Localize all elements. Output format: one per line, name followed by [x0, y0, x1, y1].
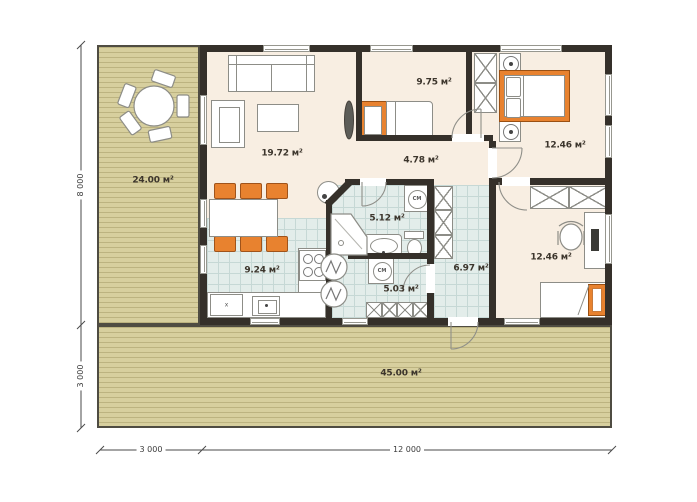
door-gap-entrance: [448, 317, 478, 326]
window-kitchen-left-1: [200, 199, 207, 228]
dining-chair: [240, 236, 262, 252]
computer-monitor: [591, 229, 599, 251]
dim-height-house: 8 000: [76, 171, 86, 200]
label-terrace-side: 24.00 м²: [132, 177, 173, 186]
wall-bath-corridor: [427, 179, 434, 318]
window-master-right-2: [605, 125, 612, 158]
office-wardrobe: [530, 186, 608, 209]
door-gap-office: [502, 177, 530, 186]
label-living-room: 19.72 м²: [261, 150, 302, 159]
door-gap-utility: [426, 264, 435, 293]
label-hallway: 4.78 м²: [403, 157, 438, 166]
door-gap-bedroom-small: [452, 134, 484, 142]
washing-machine: СМ: [404, 185, 429, 212]
window-bedroom-small-top: [370, 45, 413, 52]
kitchen-sink: [252, 296, 280, 316]
label-bathroom: 5.12 м²: [369, 215, 404, 224]
dim-height-terrace: 3 000: [76, 362, 86, 391]
label-utility: 5.03 м²: [383, 286, 418, 295]
window-living-top: [263, 45, 310, 52]
dining-chair: [214, 236, 236, 252]
label-bedroom-master: 12.46 м²: [544, 142, 585, 151]
stove: [299, 250, 326, 281]
window-living-left: [200, 95, 207, 145]
label-bedroom-small: 9.75 м²: [416, 79, 451, 88]
window-utility-bottom: [342, 318, 368, 325]
wall-outer-left: [200, 45, 207, 325]
terrace-front: [97, 325, 612, 428]
wall-living-bedroom: [356, 52, 362, 141]
washing-machine-label: СМ: [413, 196, 422, 202]
kitchen-appliance-label: x: [225, 302, 229, 309]
sofa: [228, 55, 315, 92]
door-gap-bathroom: [360, 178, 386, 186]
nightstand: [499, 121, 521, 142]
dining-table: [209, 199, 278, 237]
wall-bath-top: [345, 179, 434, 185]
door-gap-master: [488, 148, 497, 178]
corridor-wardrobe: [434, 186, 453, 259]
washing-machine: СМ: [368, 256, 394, 284]
wall-kitchen-bath: [326, 200, 332, 318]
storage-cabinet: [366, 302, 428, 318]
window-master-right-1: [605, 74, 612, 116]
floor-plan: x СМ СМ: [0, 0, 697, 502]
bed-headboard: [588, 284, 606, 316]
master-wardrobe: [474, 53, 497, 113]
wall-bedrooms: [466, 52, 472, 135]
window-kitchen-bottom: [250, 318, 280, 325]
armchair: [211, 100, 245, 148]
dining-chair: [266, 183, 288, 199]
window-office-bottom: [504, 318, 540, 325]
toilet-tank: [404, 231, 424, 239]
window-kitchen-left-2: [200, 245, 207, 274]
washing-machine-label: СМ: [378, 268, 387, 274]
window-master-top: [500, 45, 562, 52]
coffee-table: [257, 104, 299, 132]
label-corridor: 6.97 м²: [453, 265, 488, 274]
wall-bath-utility: [348, 253, 427, 259]
window-office-right: [605, 214, 612, 264]
label-bedroom-office: 12.46 м²: [530, 254, 571, 263]
label-terrace-front: 45.00 м²: [380, 370, 421, 379]
dining-chair: [240, 183, 262, 199]
label-kitchen: 9.24 м²: [244, 267, 279, 276]
dining-chair: [266, 236, 288, 252]
kitchen-appliance: x: [210, 294, 243, 316]
double-bed: [499, 70, 570, 122]
dim-width-house: 12 000: [390, 445, 424, 455]
dining-chair: [214, 183, 236, 199]
dim-width-terrace: 3 000: [137, 445, 166, 455]
